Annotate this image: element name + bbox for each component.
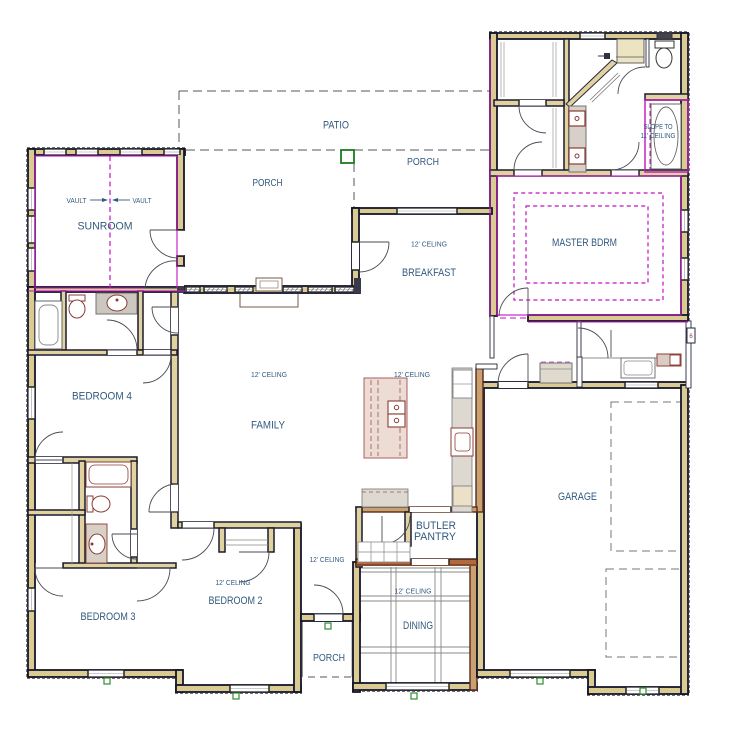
svg-text:PORCH: PORCH xyxy=(313,652,345,664)
svg-text:12' CELING: 12' CELING xyxy=(251,372,287,379)
svg-text:BEDROOM 2: BEDROOM 2 xyxy=(209,595,263,607)
svg-text:BEDROOM 4: BEDROOM 4 xyxy=(72,391,132,403)
svg-text:VAULT: VAULT xyxy=(133,198,153,205)
svg-text:PORCH: PORCH xyxy=(253,177,283,189)
svg-text:VAULT: VAULT xyxy=(67,198,88,205)
svg-text:GARAGE: GARAGE xyxy=(558,491,597,503)
svg-text:12' CELING: 12' CELING xyxy=(216,580,251,587)
svg-text:SLOPE TO: SLOPE TO xyxy=(644,124,673,131)
svg-text:12' CELING: 12' CELING xyxy=(395,589,432,596)
svg-text:DINING: DINING xyxy=(403,620,433,632)
svg-text:MASTER BDRM: MASTER BDRM xyxy=(552,237,617,249)
svg-text:11' CEILING: 11' CEILING xyxy=(641,133,676,140)
svg-text:PORCH: PORCH xyxy=(407,157,439,168)
svg-text:PATIO: PATIO xyxy=(323,120,349,132)
svg-text:12' CELING: 12' CELING xyxy=(394,372,430,379)
svg-text:12' CELING: 12' CELING xyxy=(310,557,345,564)
svg-text:FAMILY: FAMILY xyxy=(251,420,286,432)
svg-text:12' CELING: 12' CELING xyxy=(411,242,447,249)
svg-text:SUNROOM: SUNROOM xyxy=(78,221,133,233)
svg-text:BREAKFAST: BREAKFAST xyxy=(402,267,456,279)
svg-text:BEDROOM 3: BEDROOM 3 xyxy=(81,611,136,623)
svg-text:PANTRY: PANTRY xyxy=(414,531,457,543)
